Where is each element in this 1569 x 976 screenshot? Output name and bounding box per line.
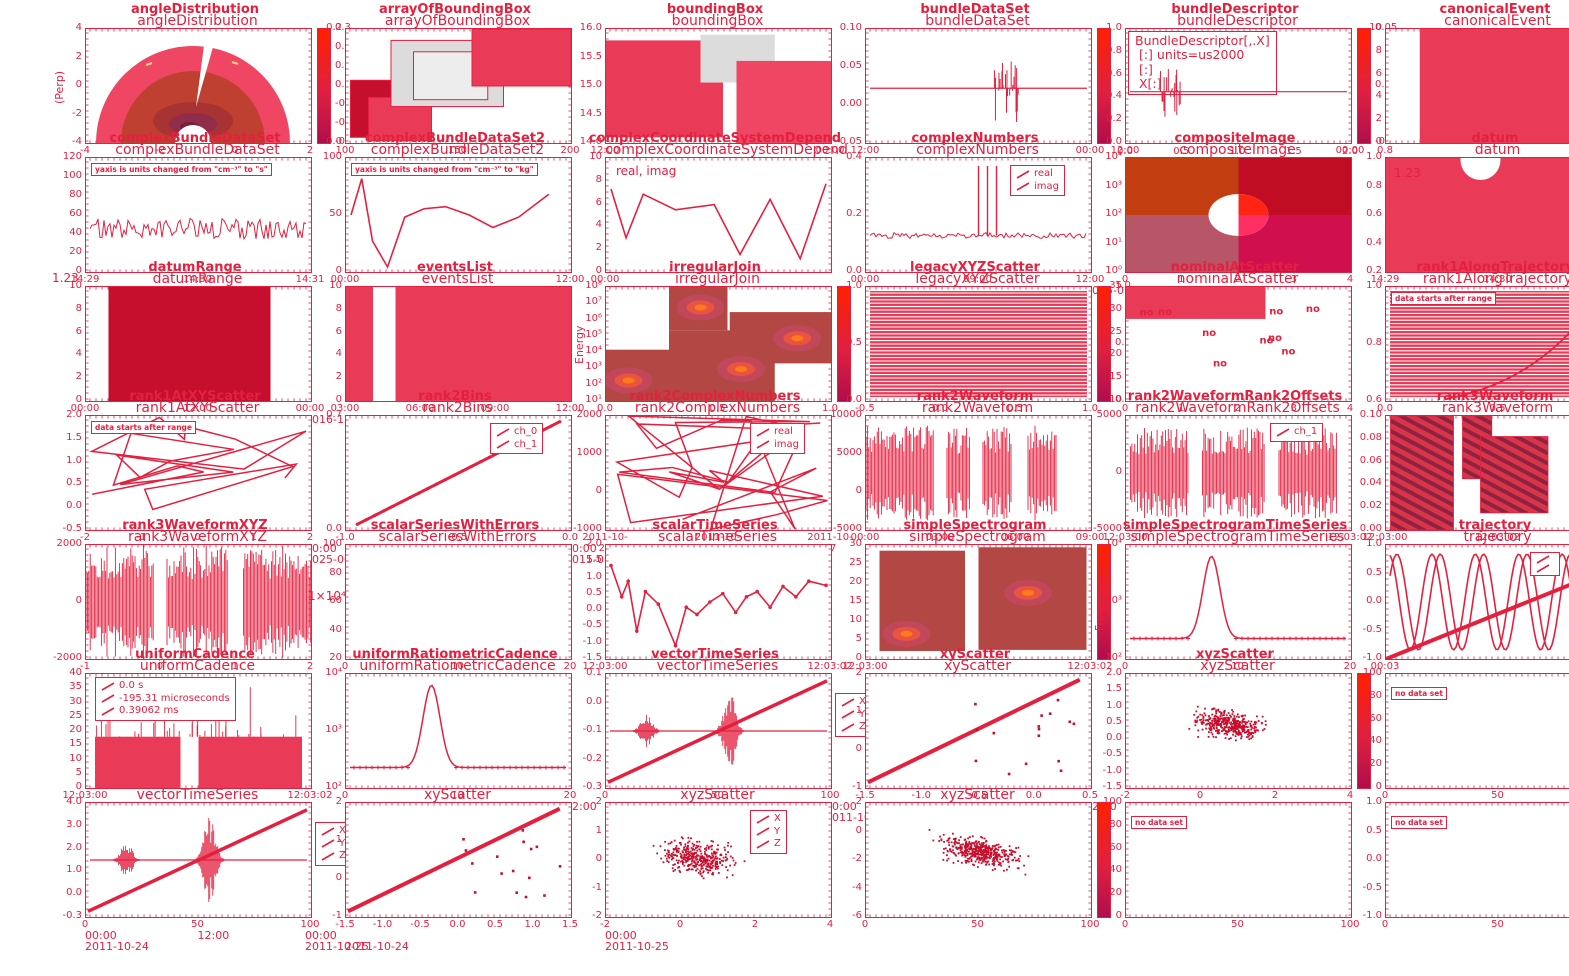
plot-title: rank2ComplexNumbers (605, 400, 830, 416)
legend: 0.0 s-195.31 microseconds0.39062 ms (95, 677, 236, 721)
y-tick-label: 20 (45, 724, 82, 735)
x-tick-label: 1 (226, 532, 282, 543)
date-label: 00:00 (565, 542, 597, 555)
svg-text:no: no (1140, 307, 1154, 318)
y-tick-label: 2000 (45, 538, 82, 549)
plot-title: xyzScatter (605, 787, 830, 803)
x-tick-label: -0.5 (837, 403, 893, 414)
x-tick-label: 00:00 (57, 403, 113, 414)
y-tick-label: -4 (45, 136, 82, 147)
figure-suptitle: simpleSpectrogram (825, 518, 1125, 533)
y-tick-label: 0 (1085, 910, 1122, 921)
figure-xyScatter: xyScatterxyScatter210-1-1.5-1.0-0.50.00.… (825, 647, 1145, 847)
x-tick-label: 0 (652, 919, 708, 930)
y-tick-label: 0.6 (1085, 68, 1122, 79)
x-tick-label: 4 (1322, 790, 1378, 801)
figure-complexNumbers: complexNumberscomplexNumbers0.40.20.000:… (825, 131, 1145, 331)
y-tick-label: 10 (1345, 22, 1382, 33)
y-tick-label: 80 (45, 189, 82, 200)
plot-axes (1385, 544, 1569, 660)
y-tick-label: 3.0 (45, 819, 82, 830)
y-tick-label: -1000 (565, 523, 602, 534)
y-tick-label: 15 (825, 595, 862, 606)
y-tick-label: 1.0 (1085, 22, 1122, 33)
colorbar-tick-label: -0.3 (335, 136, 381, 147)
y-tick-label: -0.5 (565, 619, 602, 630)
x-tick-label: 0.0 (1357, 403, 1413, 414)
x-tick-label: 09:00 (467, 403, 523, 414)
x-tick-label: 12:03:00 (57, 790, 113, 801)
y-tick-label: 1.5 (45, 432, 82, 443)
x-tick-label: 0 (1097, 274, 1153, 285)
x-tick-label: 06:00 (392, 403, 448, 414)
plot-axes (1385, 415, 1569, 531)
x-tick-label: 12:00 (837, 145, 893, 156)
figure-suptitle: scalarTimeSeries (565, 518, 865, 533)
x-tick-label: 0 (132, 661, 188, 672)
y-tick-label: 0 (825, 743, 862, 754)
legend: ch_1 (1270, 423, 1323, 442)
legend-entry: ch_0 (496, 426, 537, 439)
y-tick-label: 5 (45, 767, 82, 778)
y-tick-label: 0.00 (825, 98, 862, 109)
x-tick-label: 1.0 (505, 919, 561, 930)
plot-axes (85, 157, 312, 273)
x-tick-label: 2 (282, 145, 338, 156)
x-tick-label: 14:30 (1470, 274, 1526, 285)
colorbar (1357, 673, 1371, 789)
figure-suptitle: complexNumbers (825, 131, 1125, 146)
x-tick-label: -2 (132, 145, 188, 156)
y-tick-label: 10⁸ (565, 280, 602, 291)
y-tick-label: 0.0 (45, 500, 82, 511)
date-label: 2015-01-01 (865, 284, 929, 297)
plot-axes (85, 544, 312, 660)
x-tick-label: 50 (1210, 919, 1266, 930)
plot-axes (605, 415, 832, 531)
x-tick-label: 12:00 (542, 403, 598, 414)
y-tick-label: -1.5 (565, 652, 602, 663)
plot-title: canonicalEvent (1385, 13, 1569, 29)
x-tick-label: 1 (1153, 403, 1209, 414)
x-axis-label: (Parallel) (85, 156, 310, 169)
y-tick-label: 0.5 (1345, 567, 1382, 578)
legend-entry: ch_1 (496, 439, 537, 452)
y-tick-label: 100 (1085, 796, 1122, 807)
plot-axes (1385, 28, 1569, 144)
y-tick-label: 0 (45, 595, 82, 606)
y-tick-label: 0 (45, 265, 82, 276)
plot-title: angleDistribution (85, 13, 310, 29)
figure-suptitle: xyzScatter (1085, 647, 1385, 662)
svg-text:no: no (1281, 346, 1295, 357)
y-tick-label: 1.5 (1085, 683, 1122, 694)
y-tick-label: 40 (1345, 735, 1382, 746)
y-tick-label: 15 (1085, 371, 1122, 382)
y-tick-label: 0 (305, 872, 342, 883)
y-axis-label: (Perp) (53, 32, 66, 142)
svg-text:no: no (1269, 306, 1283, 317)
date-label: 00:00 (825, 800, 857, 813)
y-tick-label: 0 (565, 485, 602, 496)
y-tick-label: 10⁰ (1085, 265, 1122, 276)
y-tick-label: 30 (45, 696, 82, 707)
legend: XYZ (835, 693, 872, 737)
y-tick-label: 0.0 (565, 603, 602, 614)
x-tick-label: 0 (1097, 919, 1153, 930)
y-tick-label: 0.2 (825, 208, 862, 219)
x-tick-label: 12:00 (170, 403, 226, 414)
x-tick-label: 00:00 (837, 532, 893, 543)
plot-title: rank2WaveformRank2Offsets (1125, 400, 1350, 416)
y-tick-label: 1.0 (45, 864, 82, 875)
x-tick-label: 2 (1210, 403, 1266, 414)
y-tick-label: 100 (305, 151, 342, 162)
plot-axes (1385, 286, 1569, 402)
figure-suptitle: uniformRatiometricCadence (305, 647, 605, 662)
figure-suptitle: rank1AtXYScatter (45, 389, 345, 404)
y-tick-label: 20 (825, 576, 862, 587)
date-label: 12:00 (1085, 800, 1117, 813)
figure-suptitle: rank2Waveform (825, 389, 1125, 404)
svg-text:no: no (1306, 304, 1320, 315)
x-tick-label: -0.5 (950, 790, 1006, 801)
x-tick-label: 50 (1470, 790, 1526, 801)
date-label: 2011-10-25 (825, 811, 889, 824)
y-tick-label: 10³ (1085, 180, 1122, 191)
y-tick-label: 60 (1345, 713, 1382, 724)
date-label: 2025-06-11 (85, 553, 149, 566)
svg-text:no: no (1268, 333, 1282, 344)
x-tick-label: -1 (57, 661, 113, 672)
x-tick-label: 2011-10-27 (802, 532, 858, 554)
y-tick-label: -0.5 (1085, 748, 1122, 759)
y-tick-label: 0 (45, 79, 82, 90)
plot-title: uniformRatiometricCadence (345, 658, 570, 674)
plot-title: bundleDataSet (865, 13, 1090, 29)
x-tick-label: 100 (282, 919, 338, 930)
y-tick-label: 25 (825, 557, 862, 568)
plot-title: complexBundleDataSet (85, 142, 310, 158)
plot-title: rank2Waveform (865, 400, 1090, 416)
y-tick-label: 1 (825, 705, 862, 716)
plot-title: xyzScatter (1125, 658, 1350, 674)
y-tick-label: -5000 (1085, 523, 1122, 534)
y-tick-label: 0.0 (565, 696, 602, 707)
y-tick-label: 2.0 (45, 842, 82, 853)
y-tick-label: 80 (305, 567, 342, 578)
x-tick-label: -0.5 (430, 532, 486, 543)
date-label: 2015-03-01 (865, 542, 929, 555)
y-tick-label: 10 (45, 280, 82, 291)
x-top-tick-label: 1.0 (1218, 146, 1258, 157)
colorbar-tick-label: -0.05 (1375, 136, 1421, 147)
plot-title: boundingBox (605, 13, 830, 29)
y-tick-label: -1 (565, 882, 602, 893)
x-tick-label: 0 (1172, 790, 1228, 801)
figure-eventsList: eventsListeventsList108642003:0006:0009:… (305, 260, 625, 460)
x-tick-label: 09:00 (1062, 532, 1118, 543)
plot-title: uniformCadence (85, 658, 310, 674)
plot-title: nominalAtScatter (1125, 271, 1350, 287)
x-tick-label: 2 (282, 532, 338, 543)
x-tick-label: 2 (1210, 274, 1266, 285)
date-label: 12:00 (198, 929, 230, 942)
figure-suptitle: rank1AlongTrajectory (1345, 260, 1569, 275)
y-tick-label: 0.6 (1345, 394, 1382, 405)
x-tick-label: 12:03:00 (577, 661, 633, 672)
plot-title: complexBundleDataSet2 (345, 142, 570, 158)
x-tick-label: 20 (542, 790, 598, 801)
figure-complexCoordinateSystemDepend: complexCoordinateSystemDependcomplexCoor… (565, 131, 885, 331)
colorbar-tick-label: 0.1 (335, 60, 381, 71)
x-tick-label: 100 (802, 790, 858, 801)
annotation-chip: yaxis is units changed from "cm⁻³" to "s… (91, 163, 272, 176)
y-tick-label: 5000 (825, 447, 862, 458)
plot-axes (345, 286, 572, 402)
y-tick-label: 0 (825, 652, 862, 663)
x-tick-label: 2011-10-26 (690, 532, 746, 554)
y-tick-label: -0.3 (565, 781, 602, 792)
inline-text: 1.23 (1394, 166, 1421, 180)
colorbar-tick-label: 0.2 (335, 41, 381, 52)
figure-complexBundleDataSet2: complexBundleDataSet2complexBundleDataSe… (305, 131, 625, 331)
y-tick-label: 6 (1345, 68, 1382, 79)
plot-montage-root: { "palette":{"red":"#e4203f","crimson":"… (0, 0, 1569, 904)
y-tick-label: -6 (825, 910, 862, 921)
date-label: 2016-12-22 (305, 413, 369, 426)
y-tick-label: -0.2 (565, 753, 602, 764)
plot-axes (1125, 544, 1352, 660)
date-label: 2011-10-24 (85, 940, 149, 953)
y-tick-label: 4 (305, 348, 342, 359)
date-label: 2012-10-02 (1125, 682, 1189, 695)
figure-xyScatter: xyScatter210-1-1.5-1.0-0.50.00.51.01.520… (305, 776, 625, 976)
x-tick-label: 20 (1322, 661, 1378, 672)
y-tick-label: 40 (305, 624, 342, 635)
y-tick-label: 8 (1345, 45, 1382, 56)
y-axis-label: Frequency (1093, 548, 1106, 658)
figure-suptitle: rank2WaveformRank2Offsets (1085, 389, 1385, 404)
figure-suptitle: bundleDescriptor (1085, 2, 1385, 17)
plot-axes: nonononononononono (1125, 286, 1352, 402)
svg-text:no: no (1260, 335, 1274, 346)
y-tick-label: 40 (1085, 864, 1122, 875)
y-tick-label: 1 (565, 825, 602, 836)
annotation-chip: no data set (1391, 687, 1447, 700)
y-tick-label: 0.4 (825, 151, 862, 162)
y-tick-label: 0 (1345, 781, 1382, 792)
plot-title: simpleSpectrogram (865, 529, 1090, 545)
x-tick-label: 0 (837, 919, 893, 930)
y-tick-label: 20 (1085, 348, 1122, 359)
y-tick-label: 0.5 (1085, 716, 1122, 727)
y-tick-label: 0.05 (825, 60, 862, 71)
y-tick-label: 1.5 (565, 554, 602, 565)
y-tick-label: 0.6 (1345, 208, 1382, 219)
x-tick-label: 0.5 (690, 403, 746, 414)
y-tick-label: 80 (1085, 819, 1122, 830)
y-tick-label: 0.0 (305, 136, 342, 147)
x-tick-label: 0 (317, 661, 373, 672)
colorbar-tick-label: 1.0 (1115, 280, 1161, 291)
x-top-tick-label: 0.5 (1161, 146, 1201, 157)
plot-axes (1125, 673, 1352, 789)
y-tick-label: -1 (825, 781, 862, 792)
x-tick-label: 3 (1266, 403, 1322, 414)
y-tick-label: -1 (305, 910, 342, 921)
y-tick-label: 0.8 (1345, 337, 1382, 348)
x-tick-label: 2 (727, 919, 783, 930)
y-tick-label: -5000 (825, 523, 862, 534)
colorbar (1357, 28, 1371, 144)
y-tick-label: 5 (825, 633, 862, 644)
plot-axes (865, 28, 1092, 144)
y-tick-label: 20 (1345, 758, 1382, 769)
figure-rank2Bins: rank2Binsrank2Bins0.70.0-1.0-0.50.000:00… (305, 389, 625, 589)
figure-trajectory: trajectorytrajectory1.00.50.0-0.5-1.000:… (1345, 518, 1569, 718)
y-tick-label: -1.5 (1085, 781, 1122, 792)
x-tick-label: -1.0 (355, 919, 411, 930)
plot-axes (1125, 415, 1352, 531)
y-tick-label: 2 (1345, 113, 1382, 124)
y-tick-label: -1.0 (1345, 910, 1382, 921)
annotation-chip: yaxis is units changed from "cm⁻³" to "k… (351, 163, 538, 176)
y-tick-label: 10¹ (1085, 237, 1122, 248)
figure-rank3Waveform: rank3Waveformrank3Waveform0.100.080.060.… (1345, 389, 1569, 589)
colorbar (837, 286, 851, 402)
plot-axes (605, 802, 832, 918)
figure-legacyXYZScatter: legacyXYZScatterlegacyXYZScatter1.00.50.… (825, 260, 1145, 460)
inline-text: real, imag (616, 164, 676, 178)
y-tick-label: 0.8 (1085, 45, 1122, 56)
y-tick-label: 2 (565, 796, 602, 807)
figure-irregularJoin: irregularJoinirregularJoin10⁸10⁷10⁶10⁵10… (565, 260, 885, 460)
date-label: 2011-10-24 (865, 811, 929, 824)
y-tick-label: 0 (825, 825, 862, 836)
y-tick-label: 10⁷ (565, 296, 602, 307)
x-tick-label: 0.5 (467, 919, 523, 930)
y-tick-label: 10⁴ (1085, 151, 1122, 162)
date-label: 00:00 (605, 800, 637, 813)
x-tick-label: 1.0 (802, 403, 858, 414)
figure-scalarTimeSeries: scalarTimeSeriesscalarTimeSeries2.01.51.… (565, 518, 885, 718)
y-tick-label: 25 (1085, 326, 1122, 337)
plot-axes: BundleDescriptor[,.X] [:] units=us2000 [… (1125, 28, 1352, 144)
figure-suptitle: legacyXYZScatter (825, 260, 1125, 275)
y-tick-label: 0.00 (1345, 523, 1382, 534)
x-tick-label: 12:00 (542, 274, 598, 285)
plot-axes (345, 673, 572, 789)
y-tick-label: 1.0 (1345, 796, 1382, 807)
plot-title: datumRange (85, 271, 310, 287)
y-tick-label: 10² (1085, 208, 1122, 219)
y-tick-label: 8 (45, 303, 82, 314)
y-tick-label: -2 (45, 108, 82, 119)
plot-title: vectorTimeSeries (605, 658, 830, 674)
y-tick-label: -0.3 (45, 910, 82, 921)
y-tick-label: 2 (45, 51, 82, 62)
y-tick-label: 8 (565, 174, 602, 185)
y-tick-label: -0.5 (45, 523, 82, 534)
y-tick-label: 0.0 (1085, 136, 1122, 147)
figure-suptitle: arrayOfBoundingBox (305, 2, 605, 17)
y-tick-label: 0.2 (1085, 113, 1122, 124)
plot-axes (865, 286, 1092, 402)
y-tick-label: 10⁴ (565, 345, 602, 356)
plot-title: bundleDescriptor (1125, 13, 1350, 29)
y-tick-label: -0.5 (1345, 882, 1382, 893)
y-tick-label: 10² (565, 378, 602, 389)
legend-entry: Z (841, 721, 866, 734)
figure-suptitle: irregularJoin (565, 260, 865, 275)
y-tick-label: 10³ (305, 724, 342, 735)
x-tick-label: 09:00 (950, 274, 1006, 285)
x-tick-label: 50 (690, 790, 746, 801)
legend: XYZ (750, 810, 787, 854)
y-tick-label: 10⁴ (305, 667, 342, 678)
colorbar (317, 28, 331, 144)
figure-suptitle: compositeImage (1085, 131, 1385, 146)
plot-axes (85, 673, 312, 789)
figure-rank1AlongTrajectory: rank1AlongTrajectoryrank1AlongTrajectory… (1345, 260, 1569, 460)
y-tick-label: -1.0 (1345, 652, 1382, 663)
plot-title: scalarSeriesWithErrors (345, 529, 570, 545)
date-label: 2016-12-21 (85, 413, 149, 426)
x-tick-label: 4 (802, 919, 858, 930)
figure-suptitle: simpleSpectrogramTimeSeries (1085, 518, 1385, 533)
figure-suptitle: nominalAtScatter (1085, 260, 1385, 275)
date-label: 12:00 (458, 542, 490, 555)
x-tick-label: 03:00 (317, 403, 373, 414)
y-tick-label: 30 (825, 538, 862, 549)
y-tick-label: 40 (45, 227, 82, 238)
x-tick-label: 10 (430, 790, 486, 801)
y-tick-label: 0.0 (45, 887, 82, 898)
y-tick-label: -2000 (45, 652, 82, 663)
x-tick-label: 1 (207, 661, 263, 672)
date-label: 00:00 (305, 542, 337, 555)
x-tick-label: 4 (1322, 403, 1378, 414)
plot-title: complexNumbers (865, 142, 1090, 158)
x-tick-label: 10 (1210, 661, 1266, 672)
legend-entry: Z (756, 838, 781, 851)
y-tick-label: 2.0 (565, 538, 602, 549)
colorbar-tick-label: 0.0 (1115, 394, 1161, 405)
y-tick-label: 2.0 (1085, 667, 1122, 678)
y-tick-label: -0.05 (825, 136, 862, 147)
y-tick-label: 15.0 (565, 79, 602, 90)
y-tick-label: 15.5 (565, 51, 602, 62)
date-label: 2012-10-02 (1125, 542, 1189, 555)
colorbar-tick-label: 0.5 (1115, 337, 1161, 348)
y-tick-label: 50 (305, 208, 342, 219)
plot-title: xyScatter (345, 787, 570, 803)
y-tick-label: 35 (45, 681, 82, 692)
plot-axes (865, 415, 1092, 531)
x-tick-label: 0.5 (987, 403, 1043, 414)
x-tick-label: 00:00 (282, 403, 338, 414)
svg-text:no: no (1202, 328, 1216, 339)
x-tick-label: 2 (1247, 790, 1303, 801)
y-tick-label: 15 (45, 738, 82, 749)
x-tick-label: 0 (1097, 661, 1153, 672)
y-tick-label: 10⁴ (1085, 538, 1122, 549)
x-tick-label: 06:00 (987, 532, 1043, 543)
date-label: 12:00 (718, 800, 750, 813)
y-tick-label: 5000 (1085, 409, 1122, 420)
x-tick-label: 0 (207, 145, 263, 156)
